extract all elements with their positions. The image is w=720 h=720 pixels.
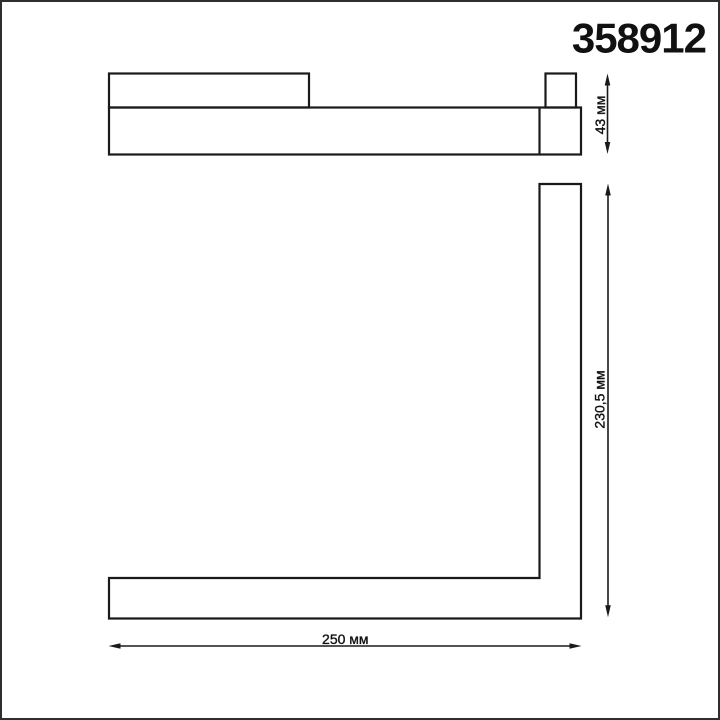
svg-text:358912: 358912 xyxy=(572,15,706,62)
svg-text:250 мм: 250 мм xyxy=(322,631,369,647)
svg-text:43 мм: 43 мм xyxy=(592,96,608,135)
svg-text:230,5 мм: 230,5 мм xyxy=(592,370,608,428)
